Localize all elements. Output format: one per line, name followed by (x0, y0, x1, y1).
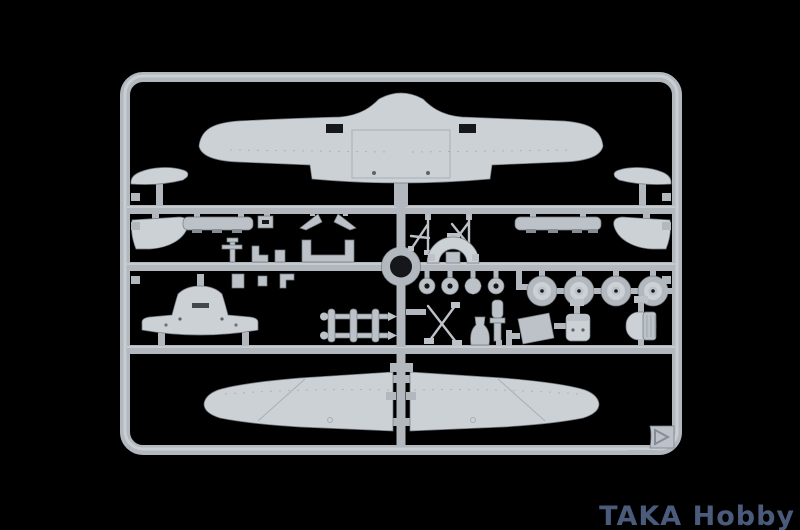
runner-ring (382, 247, 421, 286)
main-wheel-parts (516, 271, 674, 306)
hub-disc-parts (419, 271, 504, 295)
elevator-right-part (614, 211, 671, 249)
small-fittings-below-runner-b (232, 274, 294, 288)
u-frame-part (252, 240, 354, 262)
main-wheel (527, 271, 557, 306)
lower-wing-left-part (204, 372, 398, 431)
photo-stage: TAKA Hobby (0, 0, 800, 530)
tailwheel-bell-part (471, 317, 490, 345)
cockpit-arch-part (427, 233, 479, 263)
watermark-text: TAKA Hobby (599, 503, 795, 530)
lower-wing-right-part (405, 372, 599, 431)
flap-strip-left-part (183, 211, 253, 233)
gear-x-frame-part (406, 302, 462, 346)
antenna-mast-part (222, 238, 242, 262)
wing-cutout-right (459, 124, 476, 133)
corner-arrow-tab (650, 426, 674, 448)
exhaust-ladder-part (320, 309, 397, 342)
seat-part (566, 299, 590, 341)
elevator-left-part (132, 211, 189, 249)
sprue-photo (0, 0, 800, 530)
center-runner (397, 186, 406, 447)
one-piece-wing-part (199, 93, 603, 207)
equipment-panel-part (506, 313, 568, 346)
oleo-cylinder-part (490, 300, 505, 346)
main-wheel (601, 271, 631, 306)
wing-cutout-left (326, 124, 343, 133)
flap-strip-right-part (515, 211, 601, 233)
